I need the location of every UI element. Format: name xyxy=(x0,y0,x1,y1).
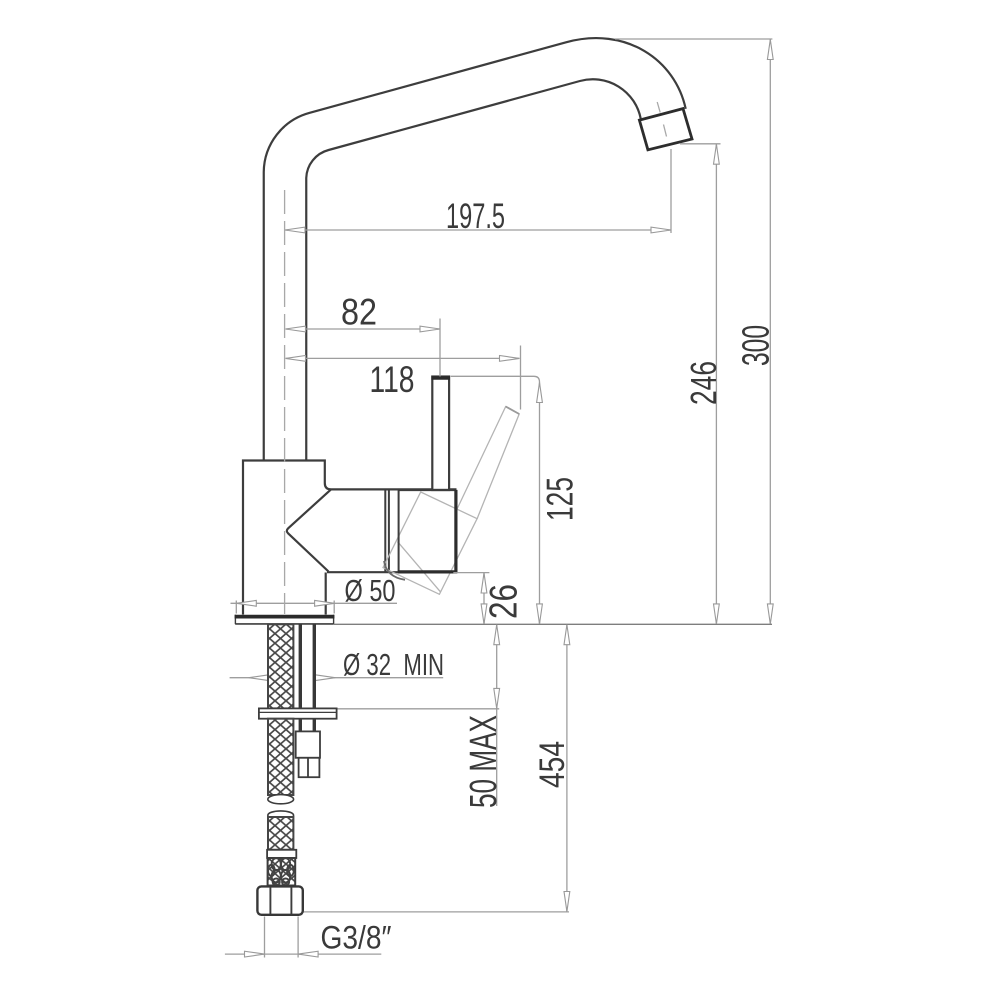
svg-text:G3/8″: G3/8″ xyxy=(321,920,392,956)
svg-text:197.5: 197.5 xyxy=(446,197,505,236)
svg-text:Ø 50: Ø 50 xyxy=(345,573,396,608)
svg-text:125: 125 xyxy=(539,477,580,521)
svg-text:300: 300 xyxy=(736,325,778,366)
svg-text:454: 454 xyxy=(533,741,572,788)
svg-text:26: 26 xyxy=(483,584,526,619)
svg-text:118: 118 xyxy=(370,359,415,400)
svg-text:82: 82 xyxy=(341,292,377,333)
svg-text:246: 246 xyxy=(683,361,724,405)
svg-text:Ø 32 MIN: Ø 32 MIN xyxy=(343,647,444,682)
svg-text:50 MAX: 50 MAX xyxy=(463,715,505,808)
